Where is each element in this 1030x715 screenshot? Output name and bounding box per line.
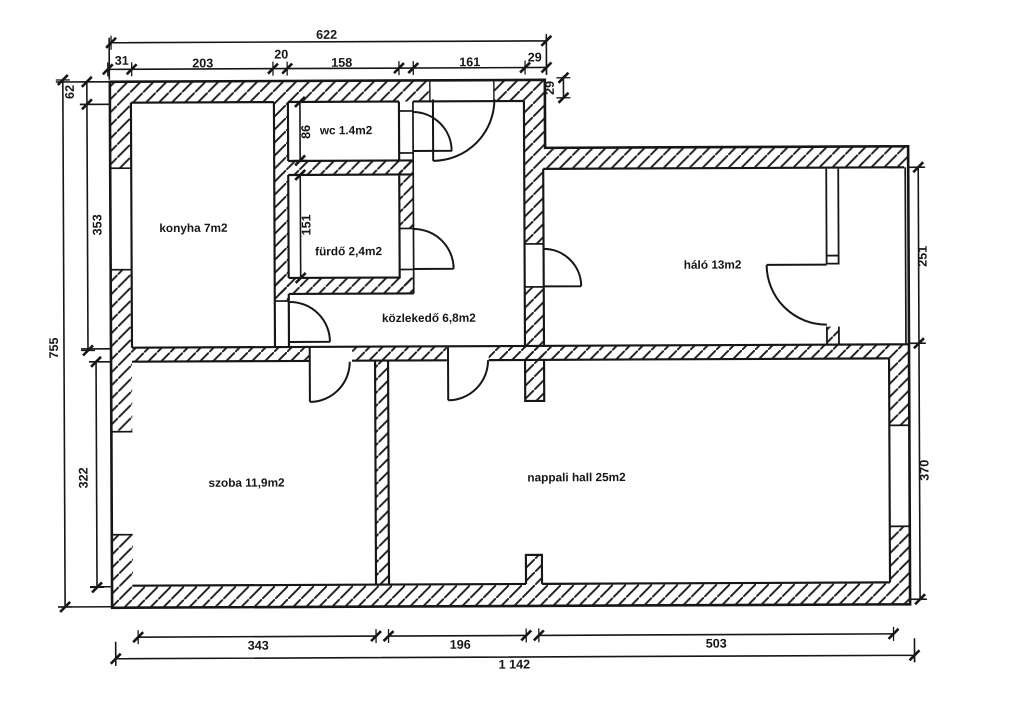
svg-text:háló 13m2: háló 13m2 <box>684 258 742 272</box>
svg-text:622: 622 <box>316 28 337 42</box>
svg-text:251: 251 <box>916 246 930 267</box>
svg-text:161: 161 <box>459 55 480 69</box>
svg-text:29: 29 <box>528 50 542 64</box>
svg-text:322: 322 <box>77 467 91 488</box>
svg-text:503: 503 <box>706 637 727 651</box>
svg-text:86: 86 <box>299 125 313 139</box>
svg-text:158: 158 <box>331 56 352 70</box>
svg-text:755: 755 <box>47 337 61 358</box>
svg-text:1 142: 1 142 <box>499 657 531 671</box>
svg-text:31: 31 <box>115 54 129 68</box>
svg-text:151: 151 <box>299 214 313 235</box>
svg-text:196: 196 <box>450 638 471 652</box>
svg-text:közlekedő 6,8m2: közlekedő 6,8m2 <box>382 311 476 325</box>
svg-text:370: 370 <box>917 460 931 481</box>
svg-text:343: 343 <box>248 639 269 653</box>
svg-text:203: 203 <box>192 56 213 70</box>
svg-text:wc 1.4m2: wc 1.4m2 <box>319 123 373 137</box>
svg-text:62: 62 <box>63 85 77 99</box>
svg-text:353: 353 <box>90 214 104 235</box>
svg-text:20: 20 <box>274 47 288 61</box>
svg-text:nappali hall 25m2: nappali hall 25m2 <box>527 470 626 484</box>
svg-text:29: 29 <box>543 81 557 95</box>
svg-text:fürdő 2,4m2: fürdő 2,4m2 <box>315 244 382 258</box>
svg-text:konyha 7m2: konyha 7m2 <box>159 221 228 235</box>
svg-text:szoba 11,9m2: szoba 11,9m2 <box>209 476 286 490</box>
